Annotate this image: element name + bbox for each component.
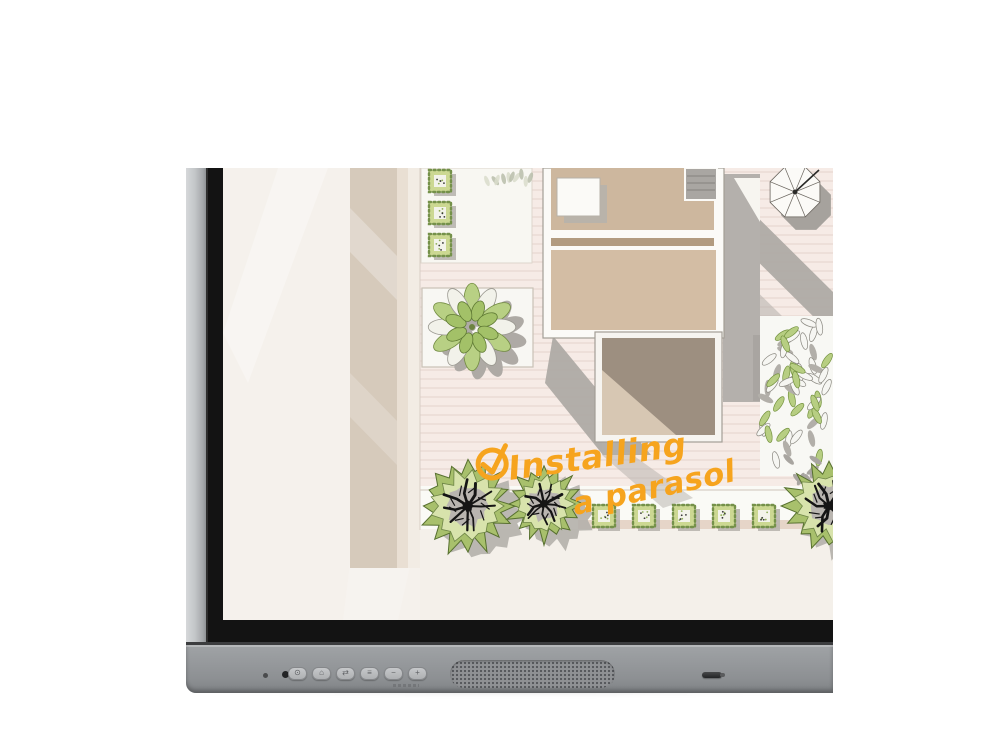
stone-path [723, 174, 763, 402]
power-button[interactable]: ⊙ [288, 667, 307, 680]
speaker-grille [450, 660, 615, 688]
home-button[interactable]: ⌂ [312, 667, 331, 680]
product-photo-canvas: Installing a parasol ⊙ ⌂ ⇄ ≡ − + [0, 0, 1000, 750]
menu-button[interactable]: ≡ [360, 667, 379, 680]
door-mat [685, 168, 717, 200]
wall-bands [350, 168, 420, 568]
interactive-display: Installing a parasol ⊙ ⌂ ⇄ ≡ − + [186, 168, 833, 690]
input-select-button[interactable]: ⇄ [336, 667, 355, 680]
table-top-view [557, 178, 607, 223]
garden-plan-artwork: Installing a parasol [223, 168, 833, 620]
volume-down-button[interactable]: − [384, 667, 403, 680]
volume-up-button[interactable]: + [408, 667, 427, 680]
ambient-light-sensor [263, 673, 268, 678]
display-chin: ⊙ ⌂ ⇄ ≡ − + [186, 642, 833, 693]
box-hedge-column [429, 170, 456, 260]
touch-screen[interactable]: Installing a parasol [223, 168, 833, 620]
brand-marking [393, 684, 419, 687]
stylus[interactable] [702, 672, 722, 678]
display-side-frame [186, 168, 206, 642]
